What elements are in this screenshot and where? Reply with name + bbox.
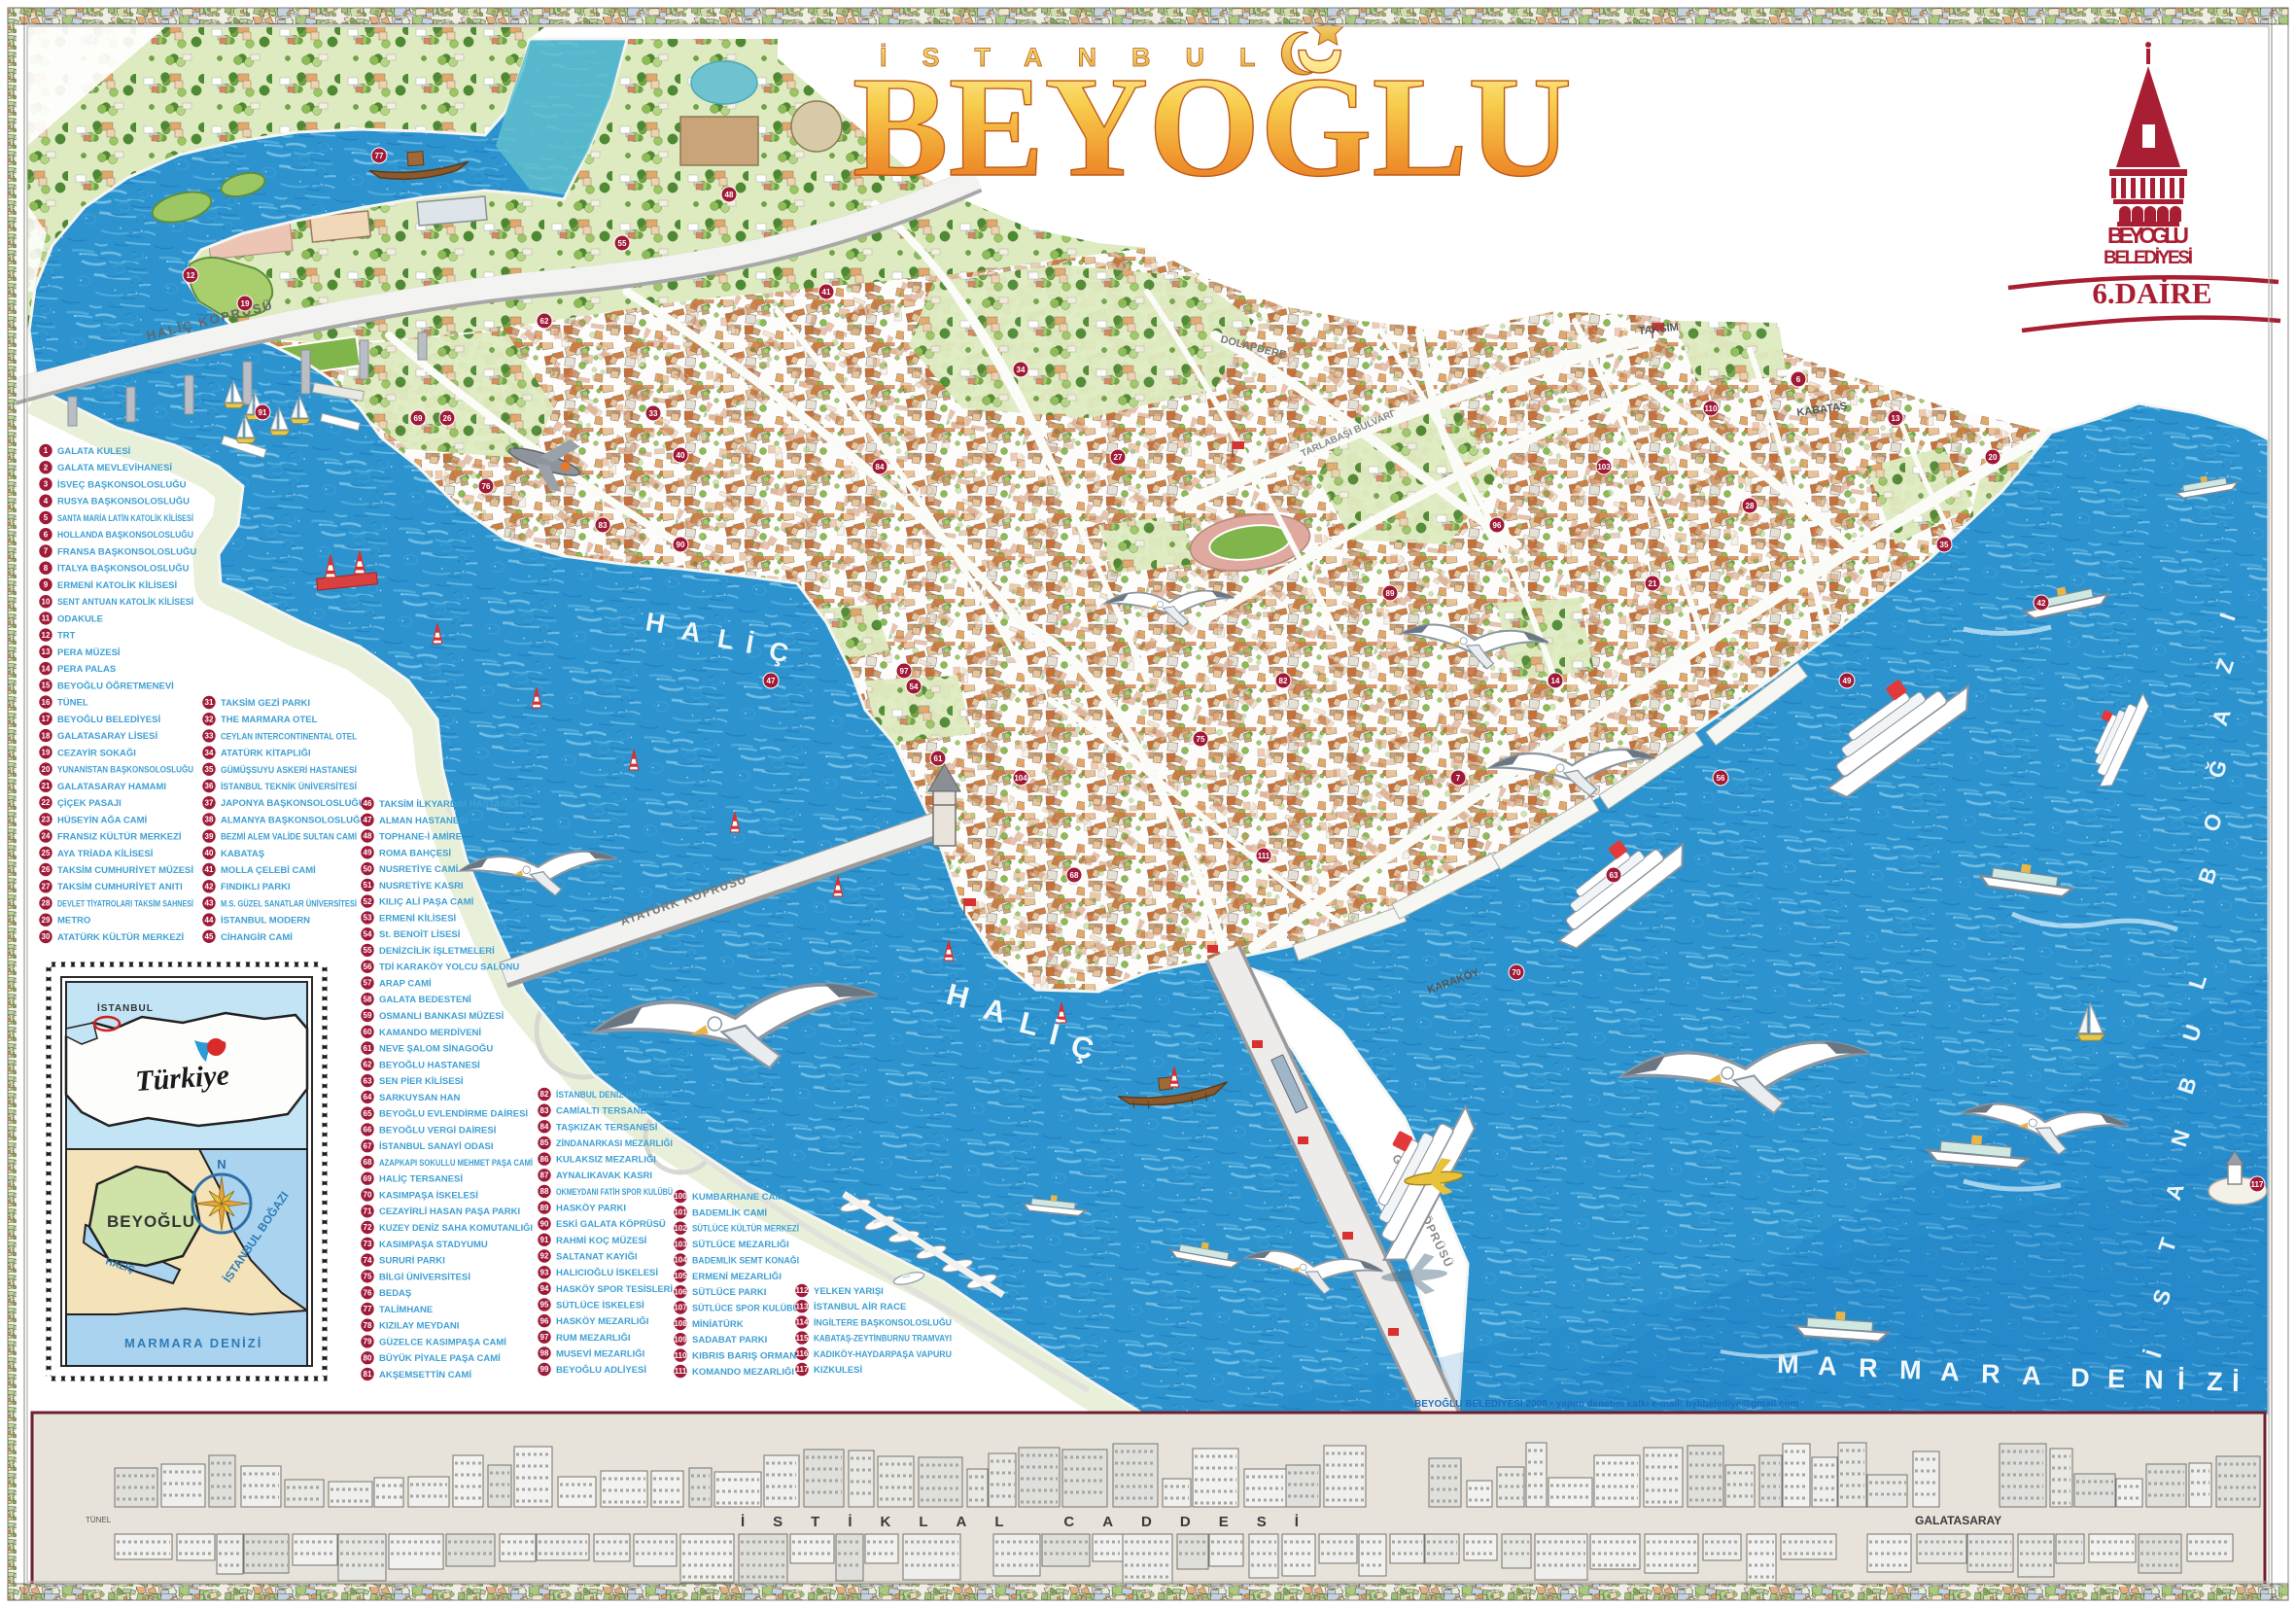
svg-text:DENİZCİLİK İŞLETMELERİ: DENİZCİLİK İŞLETMELERİ	[379, 946, 495, 957]
svg-text:97: 97	[540, 1333, 549, 1342]
svg-text:46: 46	[364, 799, 372, 808]
svg-text:110: 110	[675, 1351, 687, 1360]
svg-text:47: 47	[767, 677, 776, 685]
svg-text:KADIKÖY-HAYDARPAŞA VAPURU: KADIKÖY-HAYDARPAŞA VAPURU	[814, 1349, 952, 1360]
svg-text:3: 3	[44, 480, 49, 489]
svg-text:7: 7	[1456, 774, 1461, 783]
svg-text:JAPONYA BAŞKONSOLOSLUĞU: JAPONYA BAŞKONSOLOSLUĞU	[221, 797, 365, 809]
svg-text:104: 104	[674, 1256, 687, 1265]
svg-text:CİHANGİR CAMİ: CİHANGİR CAMİ	[221, 932, 293, 943]
svg-text:52: 52	[364, 897, 372, 906]
svg-text:BADEMLİK SEMT KONAĞI: BADEMLİK SEMT KONAĞI	[692, 1254, 799, 1266]
svg-text:13: 13	[42, 647, 51, 656]
svg-text:79: 79	[364, 1338, 372, 1346]
svg-text:73: 73	[364, 1240, 372, 1248]
svg-text:BEYOĞLU ADLİYESİ: BEYOĞLU ADLİYESİ	[556, 1364, 646, 1376]
svg-text:34: 34	[205, 749, 214, 757]
svg-text:MARMARA DENİZİ: MARMARA DENİZİ	[124, 1336, 262, 1350]
svg-text:GALATASARAY LİSESİ: GALATASARAY LİSESİ	[57, 731, 157, 742]
svg-text:83: 83	[599, 521, 608, 530]
svg-text:70: 70	[1513, 968, 1521, 977]
svg-text:BEDAŞ: BEDAŞ	[379, 1288, 411, 1299]
svg-text:GÜMÜŞSUYU ASKERİ HASTANESİ: GÜMÜŞSUYU ASKERİ HASTANESİ	[221, 765, 357, 776]
svg-text:68: 68	[1070, 871, 1079, 880]
svg-text:116: 116	[796, 1349, 809, 1358]
svg-text:107: 107	[674, 1304, 687, 1312]
svg-text:BEYOĞLU BELEDİYESİ 2008 • yapı: BEYOĞLU BELEDİYESİ 2008 • yapım denetim …	[1414, 1397, 1799, 1410]
svg-text:20: 20	[1989, 453, 1998, 462]
svg-text:109: 109	[674, 1335, 687, 1344]
svg-text:GALATA MEVLEVİHANESİ: GALATA MEVLEVİHANESİ	[57, 463, 172, 473]
svg-text:21: 21	[42, 782, 51, 790]
svg-text:HOLLANDA BAŞKONSOLOSLUĞU: HOLLANDA BAŞKONSOLOSLUĞU	[57, 529, 193, 541]
svg-text:95: 95	[540, 1301, 549, 1310]
svg-text:41: 41	[822, 288, 831, 297]
svg-text:97: 97	[900, 667, 909, 676]
svg-text:49: 49	[1843, 677, 1852, 685]
svg-text:BEYOĞLU: BEYOĞLU	[2107, 222, 2189, 248]
svg-text:St. BENOİT LİSESİ: St. BENOİT LİSESİ	[379, 929, 460, 940]
svg-text:22: 22	[42, 798, 51, 807]
svg-text:ERMENİ KİLİSESİ: ERMENİ KİLİSESİ	[379, 913, 456, 924]
svg-text:R: R	[1981, 1359, 2000, 1388]
svg-text:İNGİLTERE BAŞKONSOLOSLUĞU: İNGİLTERE BAŞKONSOLOSLUĞU	[814, 1316, 952, 1328]
svg-text:RAHMİ KOÇ MÜZESİ: RAHMİ KOÇ MÜZESİ	[556, 1236, 646, 1246]
svg-text:89: 89	[1386, 589, 1395, 598]
svg-text:KOMANDO MEZARLIĞI: KOMANDO MEZARLIĞI	[692, 1366, 794, 1378]
svg-text:CAMİALTI TERSANESİ: CAMİALTI TERSANESİ	[556, 1106, 655, 1117]
svg-text:88: 88	[540, 1187, 549, 1196]
svg-text:99: 99	[540, 1365, 549, 1374]
svg-text:PERA PALAS: PERA PALAS	[57, 664, 116, 675]
svg-text:56: 56	[1717, 774, 1725, 783]
svg-text:RUM MEZARLIĞI: RUM MEZARLIĞI	[556, 1332, 631, 1344]
svg-text:METRO: METRO	[57, 916, 90, 926]
svg-text:E: E	[2107, 1364, 2126, 1393]
svg-text:R: R	[1859, 1353, 1878, 1382]
svg-text:TOPHANE-İ AMİRE: TOPHANE-İ AMİRE	[379, 832, 462, 843]
svg-text:SÜTLÜCE İSKELESİ: SÜTLÜCE İSKELESİ	[556, 1301, 644, 1311]
svg-text:BEYOĞLU ÖĞRETMENEVİ: BEYOĞLU ÖĞRETMENEVİ	[57, 680, 174, 691]
svg-text:90: 90	[677, 541, 685, 549]
svg-text:92: 92	[540, 1252, 549, 1261]
svg-text:33: 33	[649, 409, 658, 418]
svg-text:72: 72	[364, 1223, 372, 1232]
svg-text:İ: İ	[2177, 1366, 2185, 1395]
svg-text:OSMANLI BANKASI MÜZESİ: OSMANLI BANKASI MÜZESİ	[379, 1011, 504, 1022]
svg-text:89: 89	[540, 1204, 549, 1212]
svg-text:65: 65	[364, 1109, 372, 1118]
svg-text:75: 75	[364, 1273, 372, 1281]
svg-text:90: 90	[540, 1219, 549, 1228]
svg-text:ZİNDANARKASI MEZARLIĞI: ZİNDANARKASI MEZARLIĞI	[556, 1137, 673, 1149]
svg-text:D: D	[2070, 1363, 2090, 1392]
svg-text:YUNANİSTAN BAŞKONSOLOSLUĞU: YUNANİSTAN BAŞKONSOLOSLUĞU	[57, 764, 193, 776]
svg-text:78: 78	[364, 1321, 372, 1330]
svg-text:HASKÖY MEZARLIĞI: HASKÖY MEZARLIĞI	[556, 1315, 648, 1327]
svg-text:63: 63	[364, 1076, 372, 1085]
svg-text:84: 84	[876, 463, 885, 472]
svg-text:GALATA BEDESTENİ: GALATA BEDESTENİ	[379, 995, 471, 1005]
svg-text:ERMENİ KATOLİK KİLİSESİ: ERMENİ KATOLİK KİLİSESİ	[57, 580, 177, 591]
svg-text:23: 23	[42, 816, 51, 824]
svg-text:TRT: TRT	[57, 631, 76, 642]
svg-text:40: 40	[677, 451, 685, 460]
svg-text:35: 35	[205, 765, 214, 774]
svg-text:ATATÜRK KÜLTÜR MERKEZİ: ATATÜRK KÜLTÜR MERKEZİ	[57, 932, 184, 943]
svg-text:70: 70	[364, 1191, 372, 1200]
svg-text:68: 68	[364, 1158, 372, 1167]
svg-text:26: 26	[443, 414, 452, 423]
svg-text:KIZKULESİ: KIZKULESİ	[814, 1365, 862, 1376]
svg-text:ATATÜRK KİTAPLIĞI: ATATÜRK KİTAPLIĞI	[221, 748, 311, 759]
svg-text:TÜNEL: TÜNEL	[86, 1516, 112, 1524]
svg-text:N: N	[217, 1157, 226, 1171]
svg-text:BÜYÜK PİYALE PAŞA CAMİ: BÜYÜK PİYALE PAŞA CAMİ	[379, 1353, 501, 1364]
svg-text:İSVEÇ BAŞKONSOLOSLUĞU: İSVEÇ BAŞKONSOLOSLUĞU	[57, 479, 187, 491]
svg-text:TAKSİM İLKYARDIM HASTANESİ: TAKSİM İLKYARDIM HASTANESİ	[379, 799, 522, 810]
svg-text:TAKSİM CUMHURİYET ANITI: TAKSİM CUMHURİYET ANITI	[57, 882, 183, 892]
svg-text:54: 54	[910, 682, 919, 691]
svg-text:AZAPKAPI SOKULLU MEHMET PAŞA C: AZAPKAPI SOKULLU MEHMET PAŞA CAMİ	[379, 1158, 533, 1169]
svg-text:91: 91	[259, 408, 267, 417]
svg-text:19: 19	[241, 299, 250, 308]
svg-text:4: 4	[44, 497, 49, 506]
svg-text:BEYOĞLU: BEYOĞLU	[852, 48, 1572, 207]
svg-text:45: 45	[205, 932, 214, 941]
svg-text:20: 20	[42, 765, 51, 774]
svg-text:RUSYA BAŞKONSOLOSLUĞU: RUSYA BAŞKONSOLOSLUĞU	[57, 496, 190, 507]
svg-text:ALMAN HASTANESİ: ALMAN HASTANESİ	[379, 816, 468, 826]
svg-text:102: 102	[674, 1224, 687, 1233]
svg-text:ÇİÇEK PASAJI: ÇİÇEK PASAJI	[57, 798, 122, 809]
svg-text:6.DAİRE: 6.DAİRE	[2092, 276, 2211, 310]
svg-text:64: 64	[364, 1093, 372, 1101]
svg-text:MOLLA ÇELEBİ CAMİ: MOLLA ÇELEBİ CAMİ	[221, 865, 316, 876]
svg-text:62: 62	[540, 317, 549, 326]
svg-text:48: 48	[364, 832, 372, 841]
svg-text:SÜTLÜCE MEZARLIĞI: SÜTLÜCE MEZARLIĞI	[692, 1239, 789, 1250]
svg-text:115: 115	[796, 1334, 809, 1343]
svg-text:60: 60	[364, 1028, 372, 1036]
svg-text:AYA TRİADA KİLİSESİ: AYA TRİADA KİLİSESİ	[57, 849, 153, 859]
svg-text:91: 91	[540, 1236, 549, 1244]
svg-text:11: 11	[42, 614, 51, 623]
svg-text:GALATASARAY: GALATASARAY	[1915, 1514, 2001, 1527]
svg-text:HÜSEYİN AĞA CAMİ: HÜSEYİN AĞA CAMİ	[57, 814, 147, 825]
svg-text:1: 1	[44, 446, 49, 455]
svg-text:KIZILAY MEYDANI: KIZILAY MEYDANI	[379, 1321, 459, 1332]
svg-text:GALATA KULESİ: GALATA KULESİ	[57, 446, 130, 457]
svg-text:10: 10	[42, 597, 51, 606]
svg-text:25: 25	[42, 849, 51, 857]
svg-text:111: 111	[675, 1367, 687, 1376]
svg-text:55: 55	[618, 239, 627, 248]
svg-text:KAMANDO MERDİVENİ: KAMANDO MERDİVENİ	[379, 1028, 481, 1038]
svg-text:26: 26	[42, 865, 51, 874]
svg-text:CEYLAN INTERCONTINENTAL OTEL: CEYLAN INTERCONTINENTAL OTEL	[221, 731, 357, 742]
svg-text:SEN PİER KİLİSESİ: SEN PİER KİLİSESİ	[379, 1076, 464, 1087]
svg-text:27: 27	[42, 882, 51, 891]
svg-text:SÜTLÜCE PARKI: SÜTLÜCE PARKI	[692, 1287, 766, 1298]
svg-text:Türkiye: Türkiye	[134, 1059, 230, 1098]
svg-text:82: 82	[540, 1090, 549, 1099]
svg-text:DEVLET TİYATROLARI TAKSİM SAHN: DEVLET TİYATROLARI TAKSİM SAHNESİ	[57, 899, 193, 910]
svg-text:İSTANBUL: İSTANBUL	[97, 1001, 154, 1014]
svg-text:87: 87	[540, 1171, 549, 1180]
svg-text:30: 30	[42, 932, 51, 941]
svg-text:NUSRETİYE CAMİ: NUSRETİYE CAMİ	[379, 864, 458, 875]
svg-text:HALİÇ TERSANESİ: HALİÇ TERSANESİ	[379, 1174, 463, 1185]
svg-text:66: 66	[364, 1126, 372, 1135]
svg-text:113: 113	[796, 1302, 809, 1311]
svg-text:Z: Z	[2207, 1367, 2223, 1396]
svg-text:N: N	[2144, 1365, 2164, 1394]
svg-text:KILIÇ ALİ PAŞA CAMİ: KILIÇ ALİ PAŞA CAMİ	[379, 897, 473, 908]
svg-text:110: 110	[1705, 404, 1718, 413]
svg-text:GALATASARAY HAMAMI: GALATASARAY HAMAMI	[57, 782, 166, 792]
svg-text:FINDIKLI PARKI: FINDIKLI PARKI	[221, 882, 291, 892]
svg-text:38: 38	[205, 816, 214, 824]
svg-text:19: 19	[42, 749, 51, 757]
svg-text:SARKUYSAN HAN: SARKUYSAN HAN	[379, 1093, 461, 1103]
svg-text:53: 53	[364, 914, 372, 923]
svg-text:YELKEN YARIŞI: YELKEN YARIŞI	[814, 1286, 884, 1297]
svg-text:2: 2	[44, 463, 49, 472]
svg-text:75: 75	[1197, 735, 1205, 744]
svg-text:NEVE ŞALOM SİNAGOĞU: NEVE ŞALOM SİNAGOĞU	[379, 1043, 493, 1055]
svg-text:KUZEY DENİZ SAHA KOMUTANLIĞI: KUZEY DENİZ SAHA KOMUTANLIĞI	[379, 1222, 533, 1234]
svg-text:BADEMLİK CAMİ: BADEMLİK CAMİ	[692, 1207, 767, 1218]
svg-text:CEZAYİR SOKAĞI: CEZAYİR SOKAĞI	[57, 747, 136, 758]
svg-text:69: 69	[414, 414, 423, 423]
svg-text:51: 51	[364, 881, 372, 890]
svg-text:ROMA BAHÇESİ: ROMA BAHÇESİ	[379, 848, 451, 858]
svg-text:SANTA MARİA LATİN KATOLİK KİLİ: SANTA MARİA LATİN KATOLİK KİLİSESİ	[57, 513, 193, 524]
svg-text:KUMBARHANE CAMİ: KUMBARHANE CAMİ	[692, 1192, 785, 1203]
svg-text:ODAKULE: ODAKULE	[57, 613, 103, 624]
svg-text:17: 17	[42, 715, 51, 723]
svg-text:13: 13	[1892, 414, 1900, 423]
svg-text:112: 112	[796, 1286, 809, 1295]
svg-text:KASIMPAŞA İSKELESİ: KASIMPAŞA İSKELESİ	[379, 1191, 478, 1202]
svg-text:İSTANBUL SANAYİ ODASI: İSTANBUL SANAYİ ODASI	[379, 1141, 494, 1152]
svg-text:A: A	[2022, 1361, 2041, 1390]
svg-text:SADABAT PARKI: SADABAT PARKI	[692, 1335, 767, 1346]
svg-text:43: 43	[205, 899, 214, 908]
svg-text:16: 16	[42, 698, 51, 707]
svg-text:67: 67	[364, 1141, 372, 1150]
svg-text:BEYOĞLU: BEYOĞLU	[107, 1212, 195, 1231]
svg-text:İ: İ	[2232, 1368, 2240, 1397]
svg-text:OKMEYDANI FATİH SPOR KULÜBÜ: OKMEYDANI FATİH SPOR KULÜBÜ	[556, 1187, 673, 1198]
svg-text:82: 82	[1279, 677, 1288, 685]
svg-text:104: 104	[1014, 774, 1027, 783]
svg-text:58: 58	[364, 995, 372, 1003]
svg-text:PERA MÜZESİ: PERA MÜZESİ	[57, 647, 121, 658]
svg-text:98: 98	[540, 1349, 549, 1358]
svg-text:47: 47	[364, 816, 372, 824]
svg-text:BEYOĞLU BELEDİYESİ: BEYOĞLU BELEDİYESİ	[57, 714, 160, 725]
svg-text:33: 33	[205, 732, 214, 741]
svg-text:69: 69	[364, 1174, 372, 1183]
svg-text:TÜNEL: TÜNEL	[57, 698, 88, 709]
svg-text:117: 117	[796, 1365, 809, 1374]
svg-text:54: 54	[364, 929, 372, 938]
svg-text:ESKİ GALATA KÖPRÜSÜ: ESKİ GALATA KÖPRÜSÜ	[556, 1219, 666, 1230]
svg-text:M: M	[1899, 1355, 1922, 1384]
svg-text:27: 27	[1114, 453, 1123, 462]
svg-text:21: 21	[1649, 579, 1657, 588]
svg-text:41: 41	[205, 865, 214, 874]
svg-text:ERMENİ MEZARLIĞI: ERMENİ MEZARLIĞI	[692, 1271, 782, 1282]
svg-text:108: 108	[674, 1319, 687, 1328]
svg-text:96: 96	[1493, 521, 1502, 530]
svg-text:BİLGİ ÜNİVERSİTESİ: BİLGİ ÜNİVERSİTESİ	[379, 1272, 470, 1282]
svg-text:8: 8	[44, 564, 49, 573]
svg-text:BEYOĞLU EVLENDİRME DAİRESİ: BEYOĞLU EVLENDİRME DAİRESİ	[379, 1108, 528, 1120]
svg-text:63: 63	[1610, 871, 1618, 880]
svg-text:71: 71	[364, 1207, 372, 1216]
svg-text:76: 76	[482, 482, 491, 491]
svg-text:39: 39	[205, 832, 214, 841]
svg-text:80: 80	[364, 1353, 372, 1362]
svg-text:12: 12	[42, 631, 51, 640]
svg-text:28: 28	[42, 899, 51, 908]
svg-text:77: 77	[375, 152, 384, 160]
svg-text:BELEDİYESİ: BELEDİYESİ	[2104, 248, 2193, 268]
svg-text:İSTANBUL DENİZ HASTANESİ: İSTANBUL DENİZ HASTANESİ	[556, 1090, 673, 1101]
svg-text:36: 36	[205, 782, 214, 790]
svg-text:BEZMİ ALEM VALİDE SULTAN CAMİ: BEZMİ ALEM VALİDE SULTAN CAMİ	[221, 832, 357, 843]
svg-text:83: 83	[540, 1106, 549, 1115]
svg-text:77: 77	[364, 1305, 372, 1313]
svg-text:117: 117	[2251, 1180, 2264, 1189]
svg-text:100: 100	[674, 1192, 687, 1201]
svg-text:MUSEVİ MEZARLIĞI: MUSEVİ MEZARLIĞI	[556, 1347, 644, 1359]
svg-text:İSTANBUL AİR RACE: İSTANBUL AİR RACE	[814, 1302, 906, 1312]
svg-text:34: 34	[1017, 366, 1026, 374]
svg-text:KABATAŞ: KABATAŞ	[221, 849, 264, 859]
svg-text:6: 6	[1796, 375, 1801, 384]
svg-text:29: 29	[42, 916, 51, 925]
svg-text:FRANSA BAŞKONSOLOSLUĞU: FRANSA BAŞKONSOLOSLUĞU	[57, 545, 196, 557]
svg-text:57: 57	[364, 979, 372, 988]
svg-text:CEZAYİRLİ HASAN PAŞA PARKI: CEZAYİRLİ HASAN PAŞA PARKI	[379, 1206, 520, 1217]
svg-text:A: A	[1940, 1357, 1960, 1386]
svg-text:49: 49	[364, 849, 372, 857]
svg-text:NUSRETİYE KASRI: NUSRETİYE KASRI	[379, 881, 464, 891]
svg-text:7: 7	[44, 547, 49, 556]
svg-text:SENT ANTUAN KATOLİK KİLİSESİ: SENT ANTUAN KATOLİK KİLİSESİ	[57, 597, 193, 608]
svg-text:55: 55	[364, 946, 372, 955]
svg-text:6: 6	[44, 530, 49, 539]
svg-text:40: 40	[205, 849, 214, 857]
svg-text:76: 76	[364, 1288, 372, 1297]
svg-text:84: 84	[540, 1123, 549, 1132]
svg-text:İTALYA BAŞKONSOLOSLUĞU: İTALYA BAŞKONSOLOSLUĞU	[57, 563, 190, 575]
svg-text:111: 111	[1258, 852, 1270, 860]
svg-text:SÜTLÜCE KÜLTÜR MERKEZİ: SÜTLÜCE KÜLTÜR MERKEZİ	[692, 1224, 799, 1235]
svg-text:9: 9	[44, 580, 49, 589]
svg-text:31: 31	[205, 698, 214, 707]
svg-text:GÜZELCE KASIMPAŞA CAMİ: GÜZELCE KASIMPAŞA CAMİ	[379, 1337, 506, 1347]
svg-text:14: 14	[42, 664, 51, 673]
svg-text:35: 35	[1940, 541, 1949, 549]
svg-text:İSTİKLAL CADDESİ: İSTİKLAL CADDESİ	[741, 1514, 1327, 1530]
svg-text:İSTANBUL TEKNİK ÜNİVERSİTESİ: İSTANBUL TEKNİK ÜNİVERSİTESİ	[221, 782, 357, 792]
svg-text:15: 15	[42, 682, 51, 690]
svg-text:A: A	[1818, 1351, 1837, 1381]
svg-text:TAKSİM GEZİ PARKI: TAKSİM GEZİ PARKI	[221, 698, 310, 709]
svg-text:KULAKSIZ MEZARLIĞI: KULAKSIZ MEZARLIĞI	[556, 1154, 656, 1166]
svg-text:AYNALIKAVAK KASRI: AYNALIKAVAK KASRI	[556, 1171, 652, 1181]
svg-text:5: 5	[44, 513, 49, 522]
svg-text:TAŞKIZAK TERSANESİ: TAŞKIZAK TERSANESİ	[556, 1122, 657, 1133]
svg-text:61: 61	[364, 1044, 372, 1053]
svg-text:İSTANBUL MODERN: İSTANBUL MODERN	[221, 916, 310, 926]
svg-text:THE MARMARA OTEL: THE MARMARA OTEL	[221, 715, 318, 725]
svg-text:103: 103	[1597, 463, 1611, 472]
svg-text:50: 50	[364, 864, 372, 873]
svg-text:KABATAŞ-ZEYTİNBURNU TRAMVAYI: KABATAŞ-ZEYTİNBURNU TRAMVAYI	[814, 1334, 952, 1345]
svg-text:96: 96	[540, 1316, 549, 1325]
svg-text:AKŞEMSETTİN CAMİ: AKŞEMSETTİN CAMİ	[379, 1370, 471, 1381]
svg-text:105: 105	[674, 1272, 687, 1280]
svg-text:SÜTLÜCE SPOR KULÜBÜ: SÜTLÜCE SPOR KULÜBÜ	[692, 1304, 799, 1314]
svg-text:KASIMPAŞA STADYUMU: KASIMPAŞA STADYUMU	[379, 1240, 488, 1250]
svg-text:ALMANYA BAŞKONSOLOSLUĞU: ALMANYA BAŞKONSOLOSLUĞU	[221, 814, 366, 825]
svg-text:SALTANAT KAYIĞI: SALTANAT KAYIĞI	[556, 1251, 638, 1263]
svg-text:SURURİ PARKI: SURURİ PARKI	[379, 1256, 445, 1267]
svg-text:94: 94	[540, 1284, 549, 1293]
svg-text:86: 86	[540, 1155, 549, 1164]
svg-text:114: 114	[796, 1318, 809, 1327]
svg-text:12: 12	[187, 271, 195, 280]
svg-text:TDİ KARAKÖY YOLCU SALONU: TDİ KARAKÖY YOLCU SALONU	[379, 962, 519, 973]
svg-text:93: 93	[540, 1268, 549, 1276]
svg-text:81: 81	[364, 1370, 372, 1379]
svg-text:56: 56	[364, 962, 372, 971]
svg-text:44: 44	[205, 916, 214, 925]
svg-text:59: 59	[364, 1011, 372, 1020]
svg-text:ARAP CAMİ: ARAP CAMİ	[379, 979, 432, 990]
svg-text:61: 61	[934, 754, 943, 763]
svg-text:48: 48	[725, 191, 734, 199]
svg-text:42: 42	[2037, 599, 2046, 608]
svg-text:85: 85	[540, 1138, 549, 1147]
svg-text:28: 28	[1746, 502, 1755, 510]
svg-text:FRANSIZ KÜLTÜR MERKEZİ: FRANSIZ KÜLTÜR MERKEZİ	[57, 832, 182, 843]
svg-text:HALICIOĞLU İSKELESİ: HALICIOĞLU İSKELESİ	[556, 1267, 658, 1278]
svg-text:TAKSİM CUMHURİYET MÜZESİ: TAKSİM CUMHURİYET MÜZESİ	[57, 865, 193, 876]
svg-text:101: 101	[674, 1208, 687, 1217]
svg-text:103: 103	[674, 1240, 687, 1248]
svg-text:106: 106	[674, 1287, 687, 1296]
svg-text:BEYOĞLU VERGİ DAİRESİ: BEYOĞLU VERGİ DAİRESİ	[379, 1124, 496, 1136]
svg-text:74: 74	[364, 1256, 372, 1265]
svg-text:KIBRIS BARIŞ ORMANI: KIBRIS BARIŞ ORMANI	[692, 1351, 799, 1362]
svg-text:24: 24	[42, 832, 51, 841]
svg-text:HASKÖY PARKI: HASKÖY PARKI	[556, 1204, 626, 1214]
svg-text:M.S. GÜZEL SANATLAR ÜNİVERSİTE: M.S. GÜZEL SANATLAR ÜNİVERSİTESİ	[221, 898, 357, 909]
svg-text:HASKÖY SPOR TESİSLERİ: HASKÖY SPOR TESİSLERİ	[556, 1284, 673, 1295]
svg-text:32: 32	[205, 715, 214, 723]
svg-text:14: 14	[1551, 677, 1560, 685]
svg-text:62: 62	[364, 1061, 372, 1069]
svg-text:18: 18	[42, 731, 51, 740]
svg-text:TALİMHANE: TALİMHANE	[379, 1305, 433, 1315]
